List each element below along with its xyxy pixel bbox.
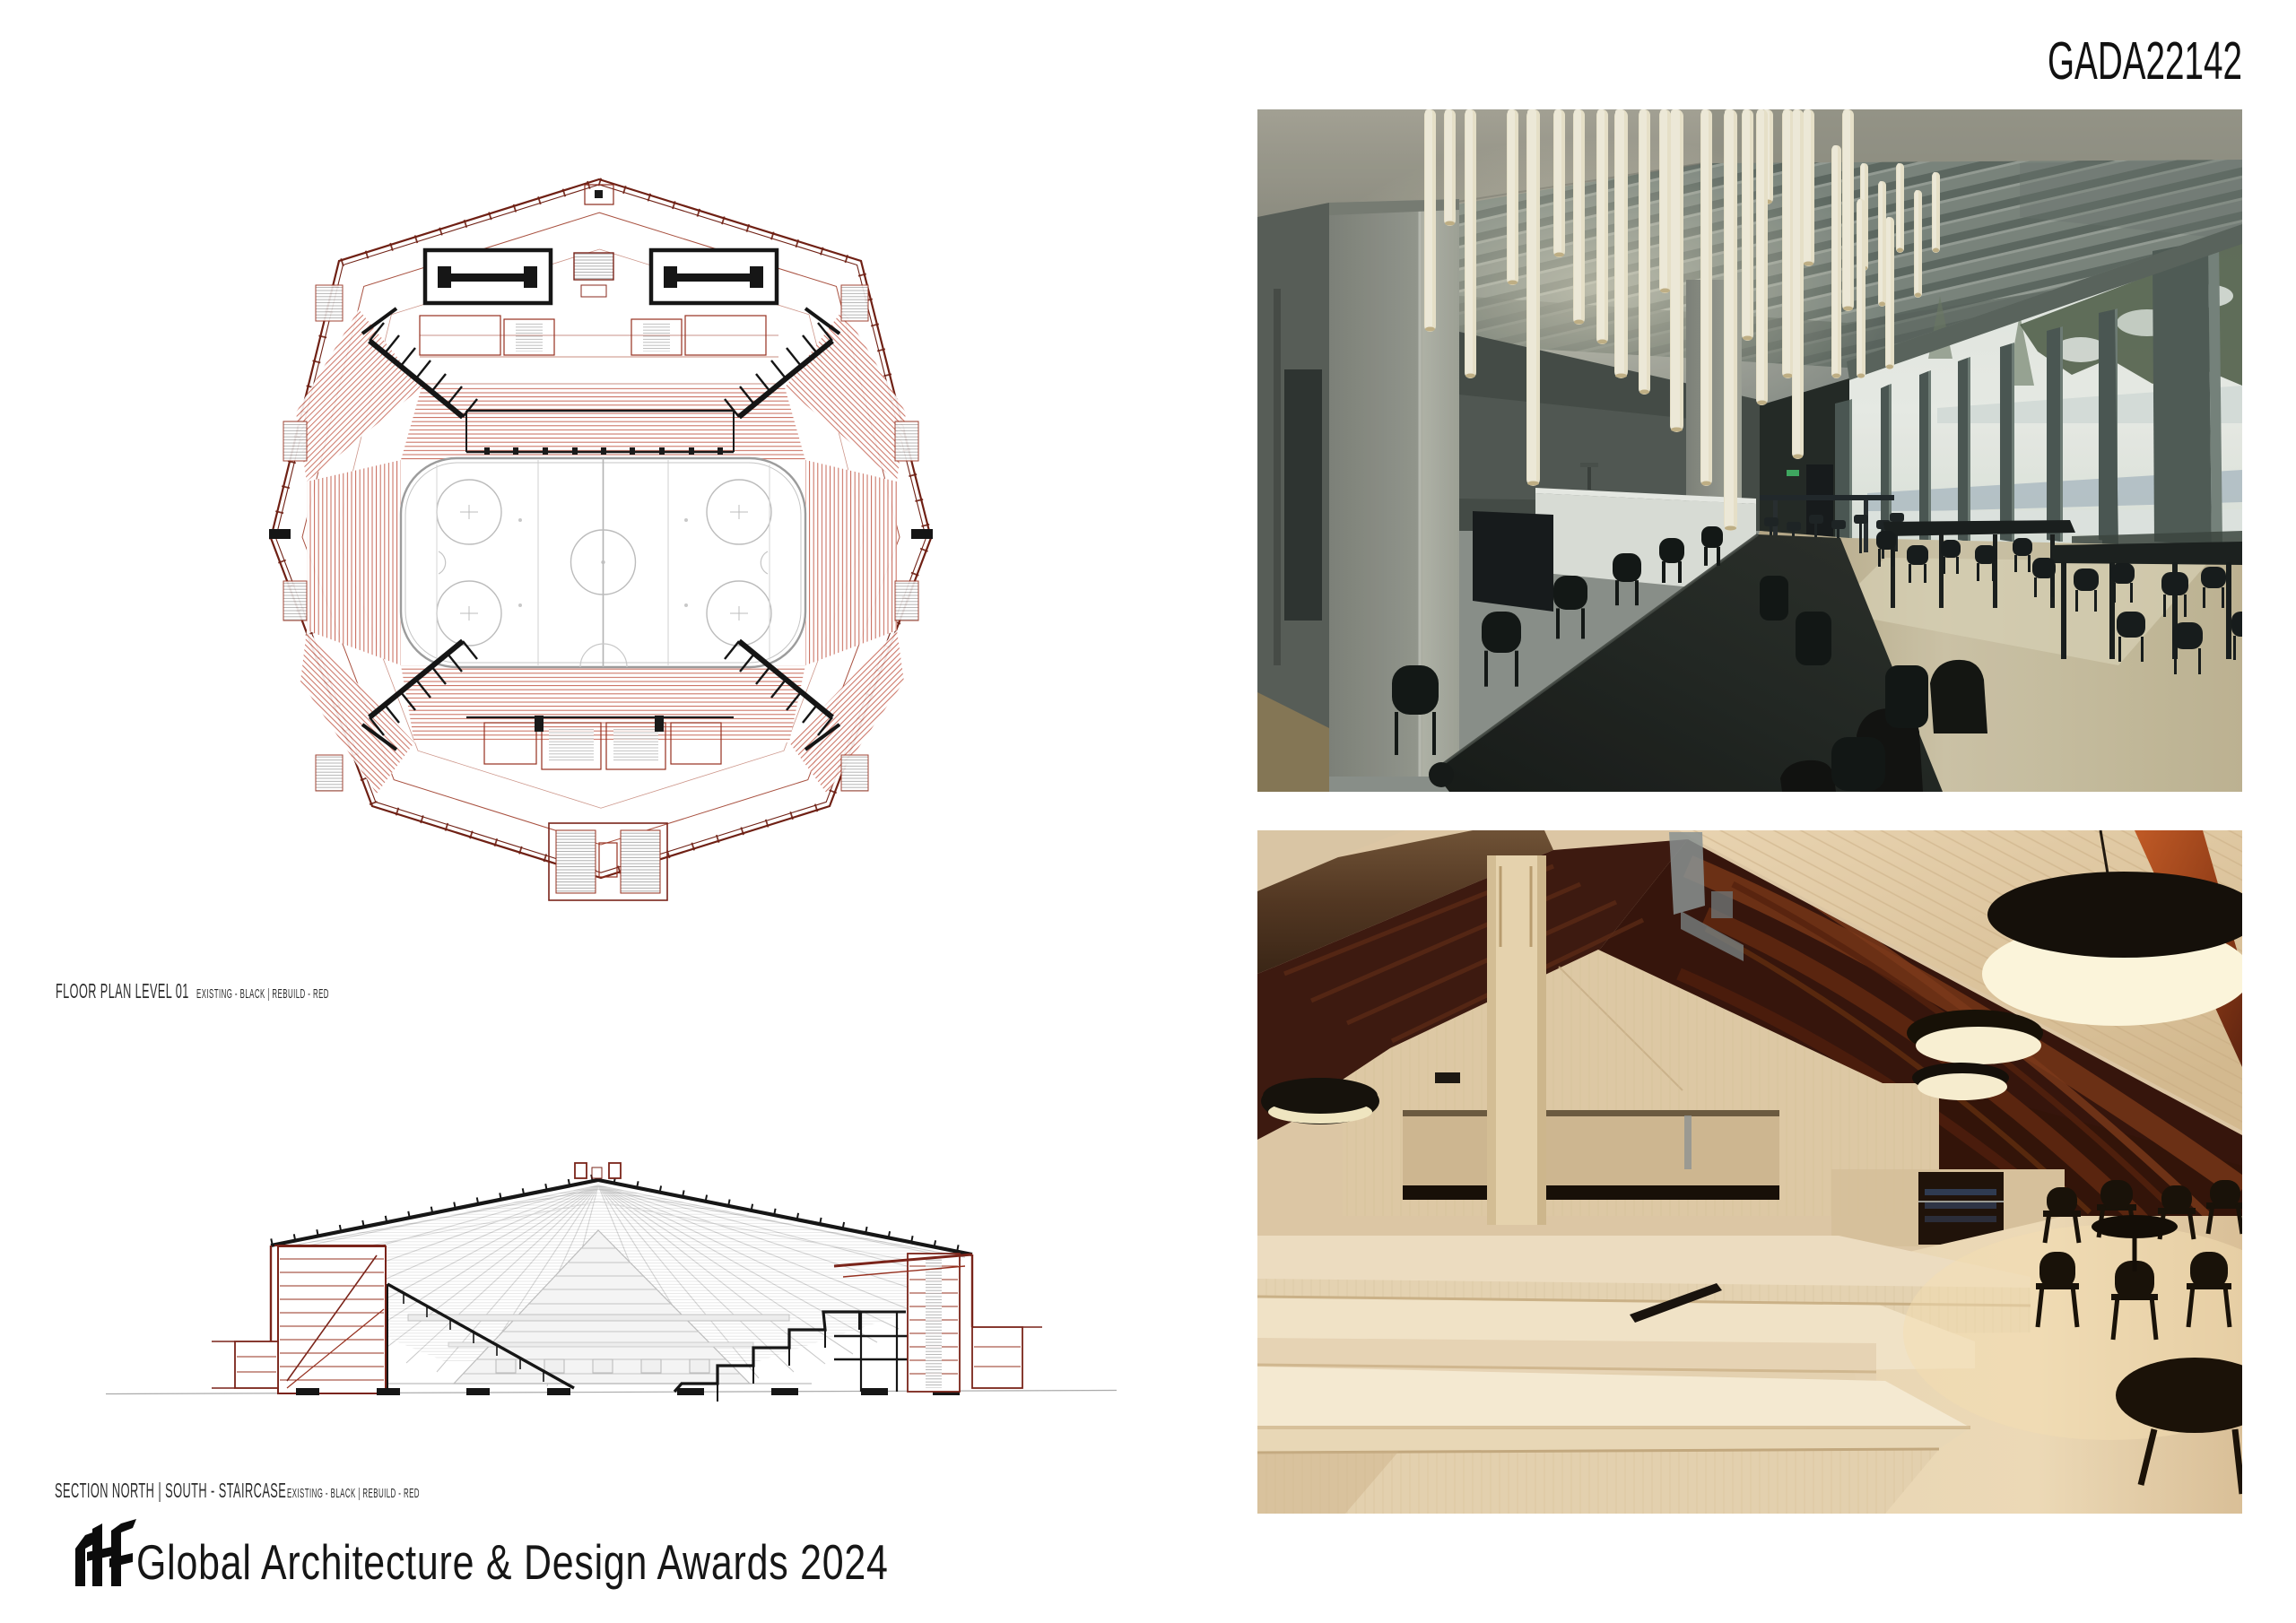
svg-text:FLOOR PLAN LEVEL 01: FLOOR PLAN LEVEL 01 xyxy=(56,980,189,1003)
svg-text:EXISTING - BLACK | REBUILD - R: EXISTING - BLACK | REBUILD - RED xyxy=(196,987,329,1002)
svg-text:SECTION NORTH | SOUTH - STAIRC: SECTION NORTH | SOUTH - STAIRCASE xyxy=(55,1480,286,1503)
svg-text:GADA22142: GADA22142 xyxy=(2048,31,2242,91)
svg-text:EXISTING - BLACK | REBUILD - R: EXISTING - BLACK | REBUILD - RED xyxy=(287,1487,420,1501)
svg-text:Global Architecture & Design A: Global Architecture & Design Awards 2024 xyxy=(136,1535,889,1590)
